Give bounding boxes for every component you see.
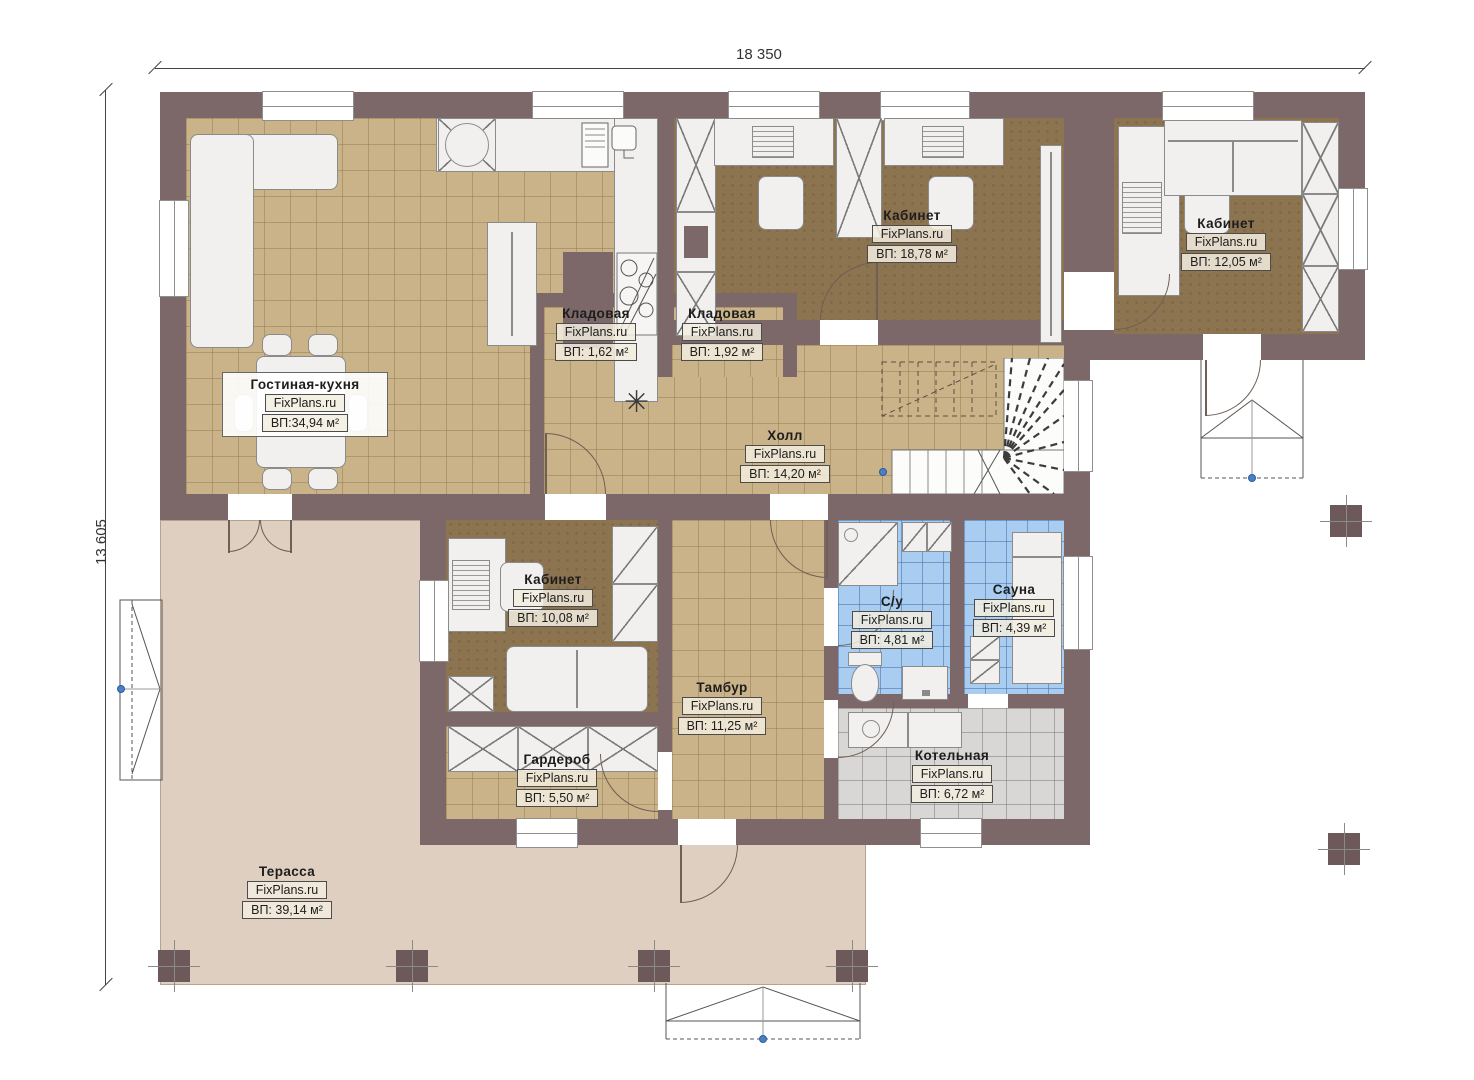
doorway-wardrobe	[658, 752, 672, 810]
dimension-width-label: 18 350	[736, 46, 782, 63]
doorway-terrace-french	[228, 494, 292, 520]
computer-icon	[452, 560, 490, 610]
window-office12-top	[1162, 91, 1254, 121]
room-label-vestibule: Тамбур FixPlans.ru ВП: 11,25 м²	[657, 680, 787, 735]
doorway-hall-vestibule	[770, 494, 828, 520]
doorway-office12	[1064, 272, 1114, 330]
room-label-wardrobe: Гардероб FixPlans.ru ВП: 5,50 м²	[492, 752, 622, 807]
window-office12-right	[1338, 188, 1368, 270]
dimension-height-label: 13 605	[93, 519, 110, 565]
wardrobe-x	[1302, 122, 1339, 194]
room-label-pantry-1: Кладовая FixPlans.ru ВП: 1,62 м²	[536, 306, 656, 361]
room-label-office-12: Кабинет FixPlans.ru ВП: 12,05 м²	[1161, 216, 1291, 271]
watermark: FixPlans.ru	[912, 765, 993, 783]
tv-screen	[511, 232, 513, 336]
door-leaf	[228, 520, 230, 553]
room-name: Кабинет	[883, 208, 940, 223]
watermark: FixPlans.ru	[852, 611, 933, 629]
sauna-bench-line	[1012, 556, 1062, 558]
watermark: FixPlans.ru	[745, 445, 826, 463]
terrace-column	[836, 950, 868, 982]
cabinet-niche	[684, 226, 708, 258]
wall-exterior-left	[160, 92, 186, 520]
watermark: FixPlans.ru	[682, 323, 763, 341]
dining-chair	[262, 468, 292, 490]
room-name: Кладовая	[688, 306, 756, 321]
room-area: ВП: 39,14 м²	[242, 901, 332, 919]
door-leaf	[876, 262, 878, 320]
room-area: ВП: 1,62 м²	[555, 343, 638, 361]
wardrobe-x	[1302, 194, 1339, 266]
wall-pantry-right	[783, 293, 797, 377]
door-leaf	[545, 433, 547, 494]
room-label-office-10: Кабинет FixPlans.ru ВП: 10,08 м²	[488, 572, 618, 627]
sofa-divider	[1232, 140, 1234, 192]
terrace-porch-left	[116, 598, 164, 782]
doorway-office18	[820, 320, 878, 345]
room-area: ВП: 1,92 м²	[681, 343, 764, 361]
room-name: Терасса	[259, 864, 315, 879]
room-label-office-18: Кабинет FixPlans.ru ВП: 18,78 м²	[847, 208, 977, 263]
door-leaf	[680, 845, 682, 903]
window-office18-top-1	[728, 91, 820, 121]
room-label-bathroom: С/у FixPlans.ru ВП: 4,81 м²	[832, 594, 952, 649]
shelf-unit	[902, 522, 927, 552]
floor-plan: 18 350 13 605	[0, 0, 1474, 1080]
room-label-living-kitchen: Гостиная-кухня FixPlans.ru ВП:34,94 м²	[222, 372, 388, 437]
boiler-counter	[908, 712, 962, 748]
wall-mid-left	[420, 520, 446, 845]
radiator-panel	[1050, 152, 1052, 336]
dimension-tick	[99, 83, 112, 96]
shelf-unit	[927, 522, 952, 552]
door-leaf	[826, 520, 828, 578]
watermark: FixPlans.ru	[872, 225, 953, 243]
room-name: Гостиная-кухня	[250, 377, 359, 392]
door-leaf	[290, 520, 292, 553]
toilet-icon	[851, 664, 879, 702]
room-label-boiler: Котельная FixPlans.ru ВП: 6,72 м²	[887, 748, 1017, 803]
window-stairs-right	[1063, 380, 1093, 472]
room-name: Сауна	[993, 582, 1036, 597]
doorway-entrance-right	[1203, 334, 1261, 360]
fridge-icon: ✳	[624, 388, 649, 418]
room-area: ВП: 4,81 м²	[851, 631, 934, 649]
terrace-column	[158, 950, 190, 982]
window-boiler-bottom	[920, 818, 982, 848]
room-label-sauna: Сауна FixPlans.ru ВП: 4,39 м²	[954, 582, 1074, 637]
shelf-unit	[612, 526, 658, 584]
wall-living-hall	[530, 370, 544, 494]
doorway-vest-boiler	[824, 700, 838, 758]
staircase	[878, 358, 1064, 494]
wall-office10-wardrobe	[446, 712, 658, 726]
watermark: FixPlans.ru	[682, 697, 763, 715]
window-living-left	[159, 200, 189, 297]
window-office18-top-2	[880, 91, 970, 121]
sauna-heater-icon	[970, 660, 1000, 684]
terrace-column	[396, 950, 428, 982]
dimension-tick	[99, 978, 112, 991]
room-name: Кабинет	[1197, 216, 1254, 231]
room-area: ВП: 18,78 м²	[867, 245, 957, 263]
room-area: ВП: 12,05 м²	[1181, 253, 1271, 271]
room-name: Кладовая	[562, 306, 630, 321]
computer-icon	[1122, 182, 1162, 234]
freestanding-column	[1328, 833, 1360, 865]
watermark: FixPlans.ru	[513, 589, 594, 607]
watermark: FixPlans.ru	[247, 881, 328, 899]
sauna-heater-icon	[970, 636, 1000, 660]
dimension-line-top	[155, 68, 1365, 69]
cabinet-x	[448, 676, 494, 712]
room-label-pantry-2: Кладовая FixPlans.ru ВП: 1,92 м²	[662, 306, 782, 361]
dining-chair	[308, 468, 338, 490]
kitchen-sink-icon	[580, 120, 642, 170]
watermark: FixPlans.ru	[556, 323, 637, 341]
room-name: Кабинет	[524, 572, 581, 587]
room-area: ВП: 11,25 м²	[678, 717, 767, 735]
sofa-divider	[576, 650, 578, 708]
dining-chair	[308, 334, 338, 356]
watermark: FixPlans.ru	[265, 394, 346, 412]
printer-icon	[752, 126, 794, 158]
printer-icon	[922, 126, 964, 158]
room-label-hall: Холл FixPlans.ru ВП: 14,20 м²	[720, 428, 850, 483]
kitchen-round-hob	[445, 123, 489, 167]
shower-head-icon	[844, 528, 858, 542]
window-office10-left	[419, 580, 449, 662]
wall-living-bottom	[160, 494, 1090, 520]
shelf-unit	[612, 584, 658, 642]
entrance-porch-bottom	[660, 983, 866, 1045]
doorway-hall-office10	[545, 494, 606, 520]
washbasin-icon	[922, 690, 930, 696]
room-area: ВП: 10,08 м²	[508, 609, 598, 627]
window-kitchen-top	[532, 91, 624, 121]
doorway-sauna	[968, 694, 1008, 708]
watermark: FixPlans.ru	[1186, 233, 1267, 251]
wardrobe-x	[1302, 266, 1339, 332]
room-area: ВП: 6,72 м²	[911, 785, 994, 803]
room-name: Тамбур	[696, 680, 747, 695]
watermark: FixPlans.ru	[517, 769, 598, 787]
room-area: ВП: 5,50 м²	[516, 789, 599, 807]
room-name: Холл	[767, 428, 803, 443]
kitchen-tall-cabinet	[676, 118, 716, 212]
door-leaf	[1205, 360, 1207, 416]
window-living-top	[262, 91, 354, 121]
room-area: ВП: 4,39 м²	[973, 619, 1056, 637]
terrace-column	[638, 950, 670, 982]
room-area: ВП: 14,20 м²	[740, 465, 830, 483]
room-area: ВП:34,94 м²	[262, 414, 348, 432]
room-name: С/у	[881, 594, 903, 609]
office-chair	[758, 176, 804, 230]
watermark: FixPlans.ru	[974, 599, 1055, 617]
window-wardrobe-bottom	[516, 818, 578, 848]
freestanding-column	[1330, 505, 1362, 537]
sofa-living	[190, 134, 254, 348]
room-label-terrace: Терасса FixPlans.ru ВП: 39,14 м²	[222, 864, 352, 919]
dining-chair	[262, 334, 292, 356]
doorway-entrance-main	[678, 819, 736, 845]
room-name: Гардероб	[523, 752, 590, 767]
room-name: Котельная	[915, 748, 989, 763]
